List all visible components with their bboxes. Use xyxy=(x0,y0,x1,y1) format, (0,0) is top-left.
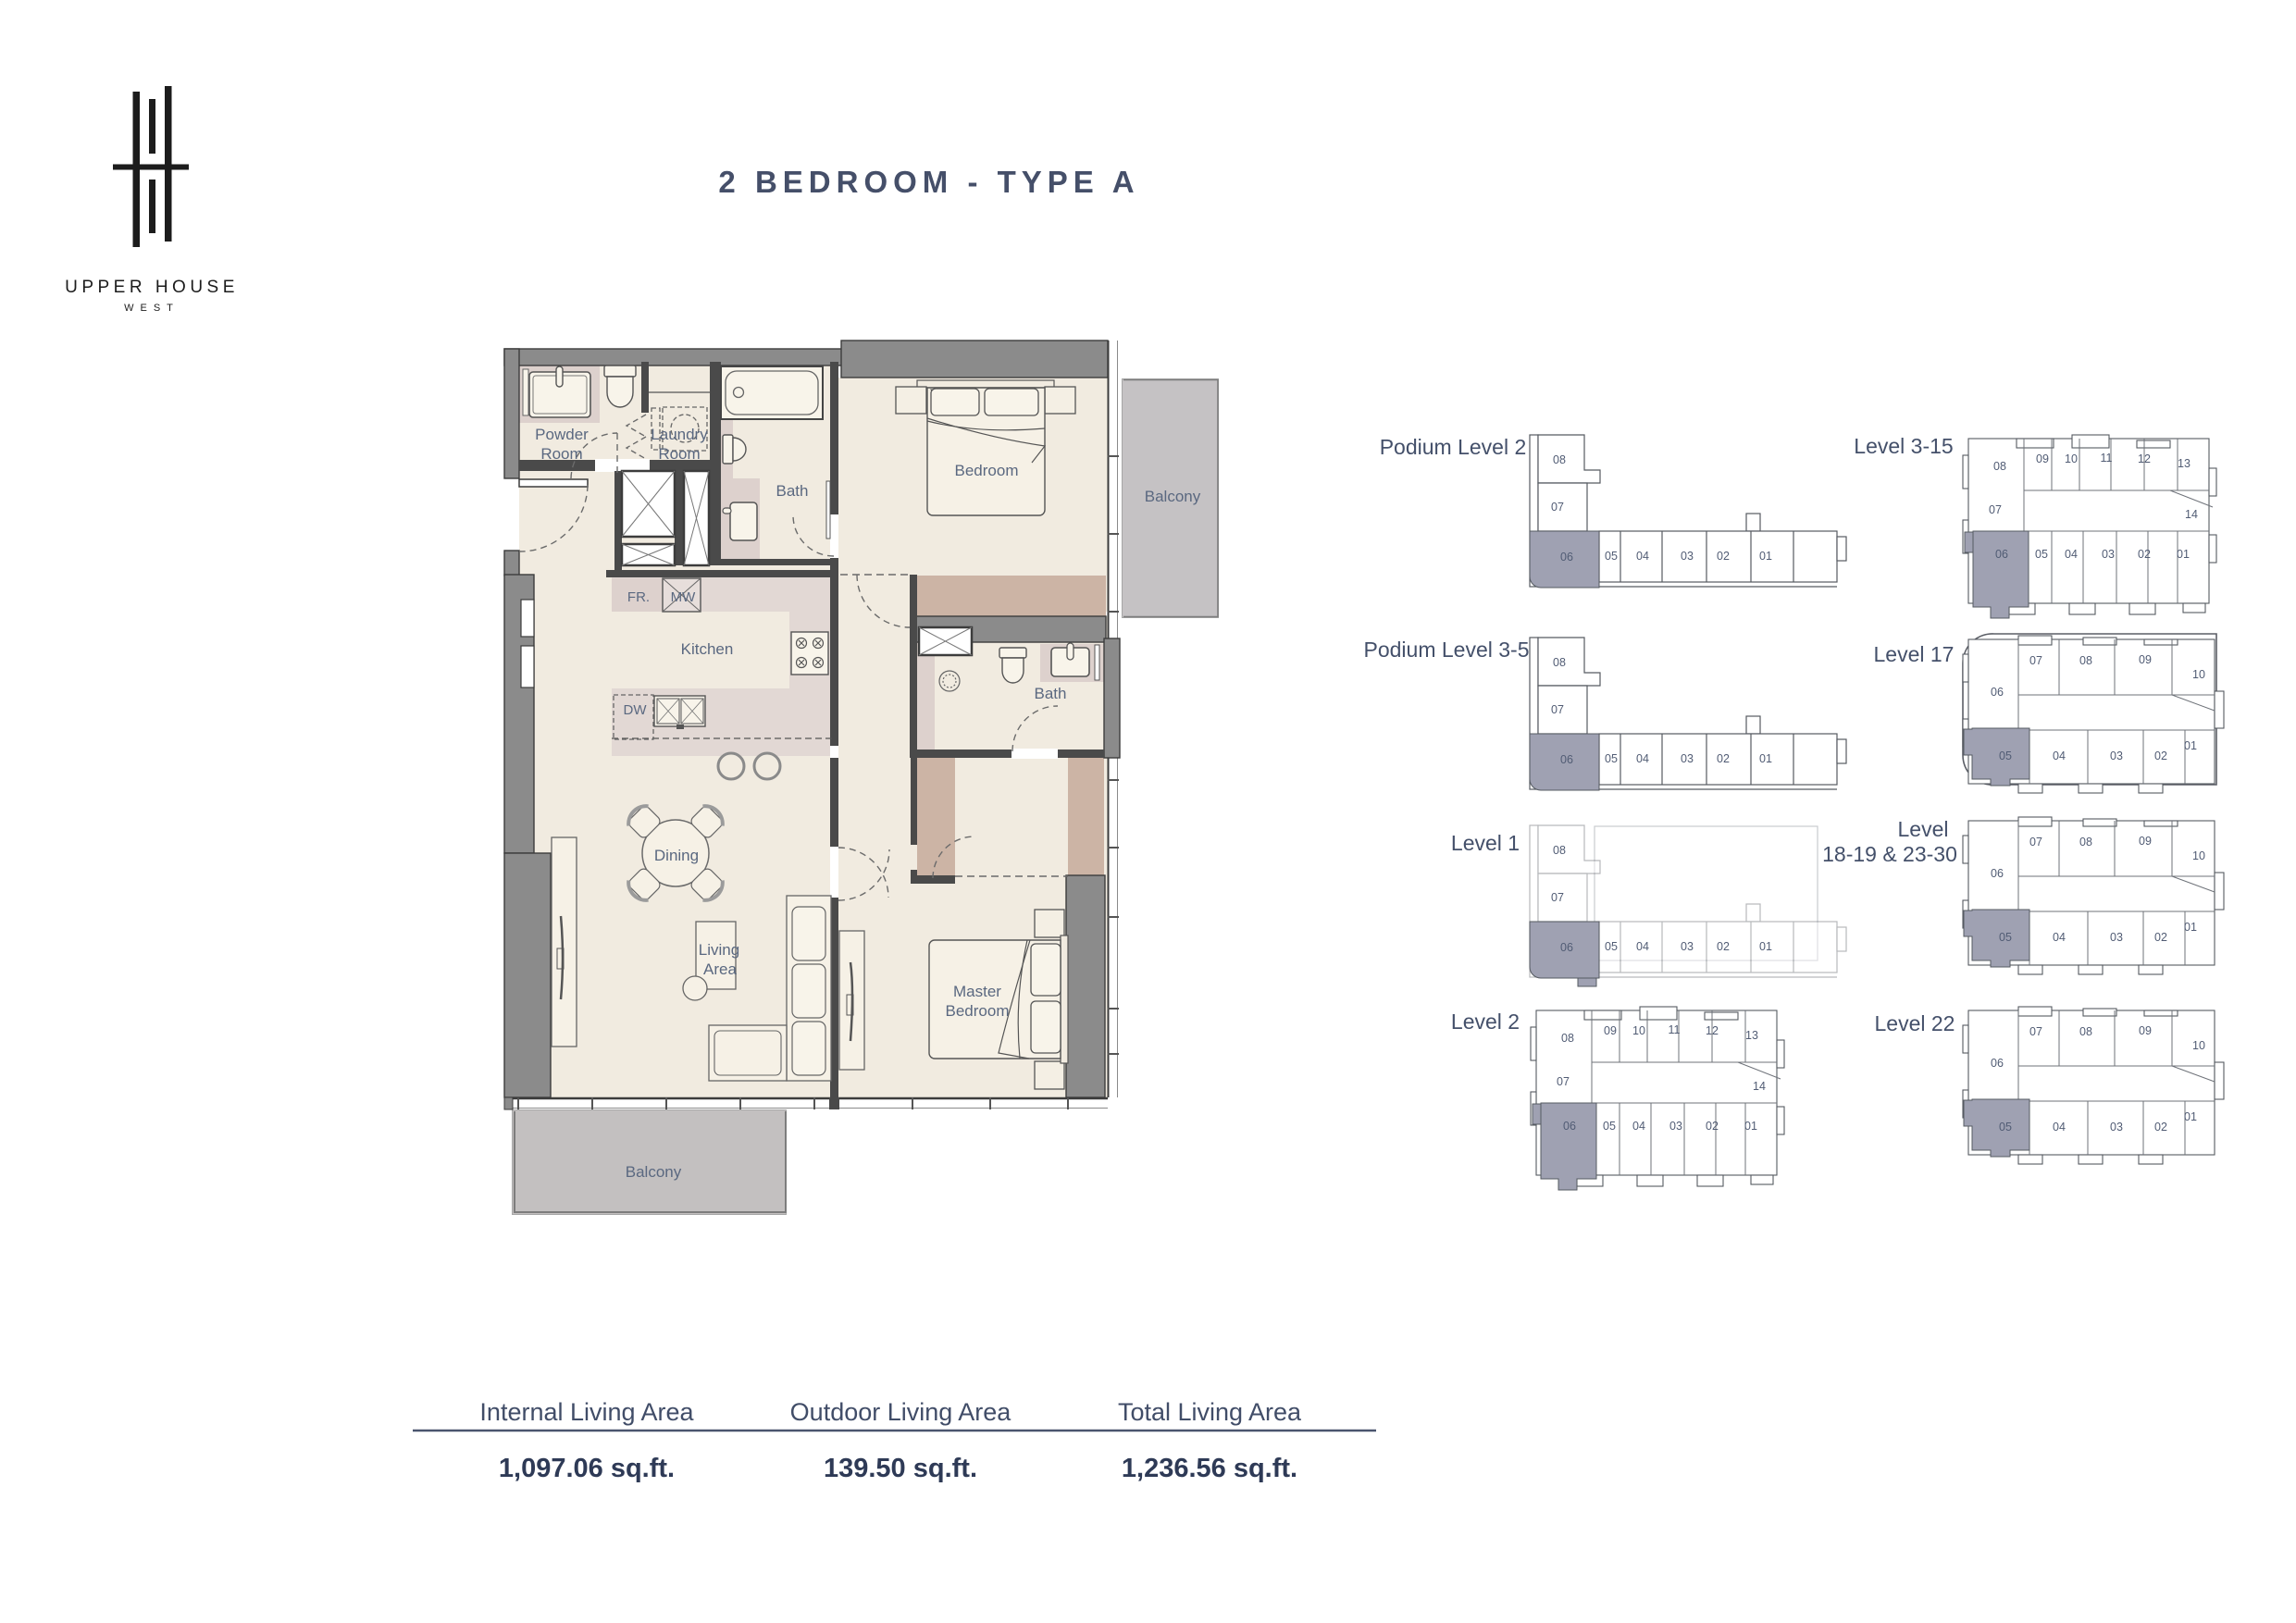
svg-text:Room: Room xyxy=(658,445,700,463)
svg-text:Bath: Bath xyxy=(776,482,809,500)
svg-text:Balcony: Balcony xyxy=(626,1163,682,1181)
svg-text:UPPER HOUSE: UPPER HOUSE xyxy=(65,278,239,297)
svg-text:Bedroom: Bedroom xyxy=(955,462,1019,479)
svg-text:Master: Master xyxy=(953,983,1001,1000)
svg-text:WEST: WEST xyxy=(124,303,180,314)
svg-text:Level 1: Level 1 xyxy=(1451,831,1520,855)
svg-text:Podium Level 3-5: Podium Level 3-5 xyxy=(1364,638,1530,662)
svg-text:18-19 & 23-30: 18-19 & 23-30 xyxy=(1822,842,1957,866)
svg-text:Bedroom: Bedroom xyxy=(946,1002,1010,1020)
svg-text:Level: Level xyxy=(1898,817,1949,841)
svg-text:Bath: Bath xyxy=(1035,685,1067,702)
svg-text:Room: Room xyxy=(540,445,582,463)
svg-text:2 BEDROOM - TYPE A: 2 BEDROOM - TYPE A xyxy=(718,165,1139,199)
svg-text:Kitchen: Kitchen xyxy=(681,640,734,658)
svg-text:Area: Area xyxy=(703,960,737,978)
svg-text:1,236.56 sq.ft.: 1,236.56 sq.ft. xyxy=(1122,1454,1297,1483)
svg-text:Balcony: Balcony xyxy=(1145,488,1201,505)
svg-text:Laundry: Laundry xyxy=(651,426,708,443)
svg-text:Level 3-15: Level 3-15 xyxy=(1854,434,1953,458)
svg-text:Living: Living xyxy=(699,941,739,959)
svg-text:Internal Living Area: Internal Living Area xyxy=(479,1398,694,1426)
svg-text:DW: DW xyxy=(624,702,648,718)
svg-text:Level 2: Level 2 xyxy=(1451,1010,1520,1034)
svg-text:Total Living Area: Total Living Area xyxy=(1118,1398,1302,1426)
svg-text:Dining: Dining xyxy=(654,847,699,864)
svg-text:139.50 sq.ft.: 139.50 sq.ft. xyxy=(824,1454,977,1483)
svg-text:Outdoor Living Area: Outdoor Living Area xyxy=(790,1398,1012,1426)
svg-text:Level 22: Level 22 xyxy=(1875,1011,1955,1035)
svg-text:Podium Level 2: Podium Level 2 xyxy=(1380,435,1527,459)
svg-text:1,097.06 sq.ft.: 1,097.06 sq.ft. xyxy=(499,1454,675,1483)
svg-text:Level 17: Level 17 xyxy=(1874,642,1955,666)
svg-text:FR.: FR. xyxy=(627,589,650,605)
svg-text:Powder: Powder xyxy=(535,426,589,443)
svg-text:MW: MW xyxy=(671,589,696,605)
